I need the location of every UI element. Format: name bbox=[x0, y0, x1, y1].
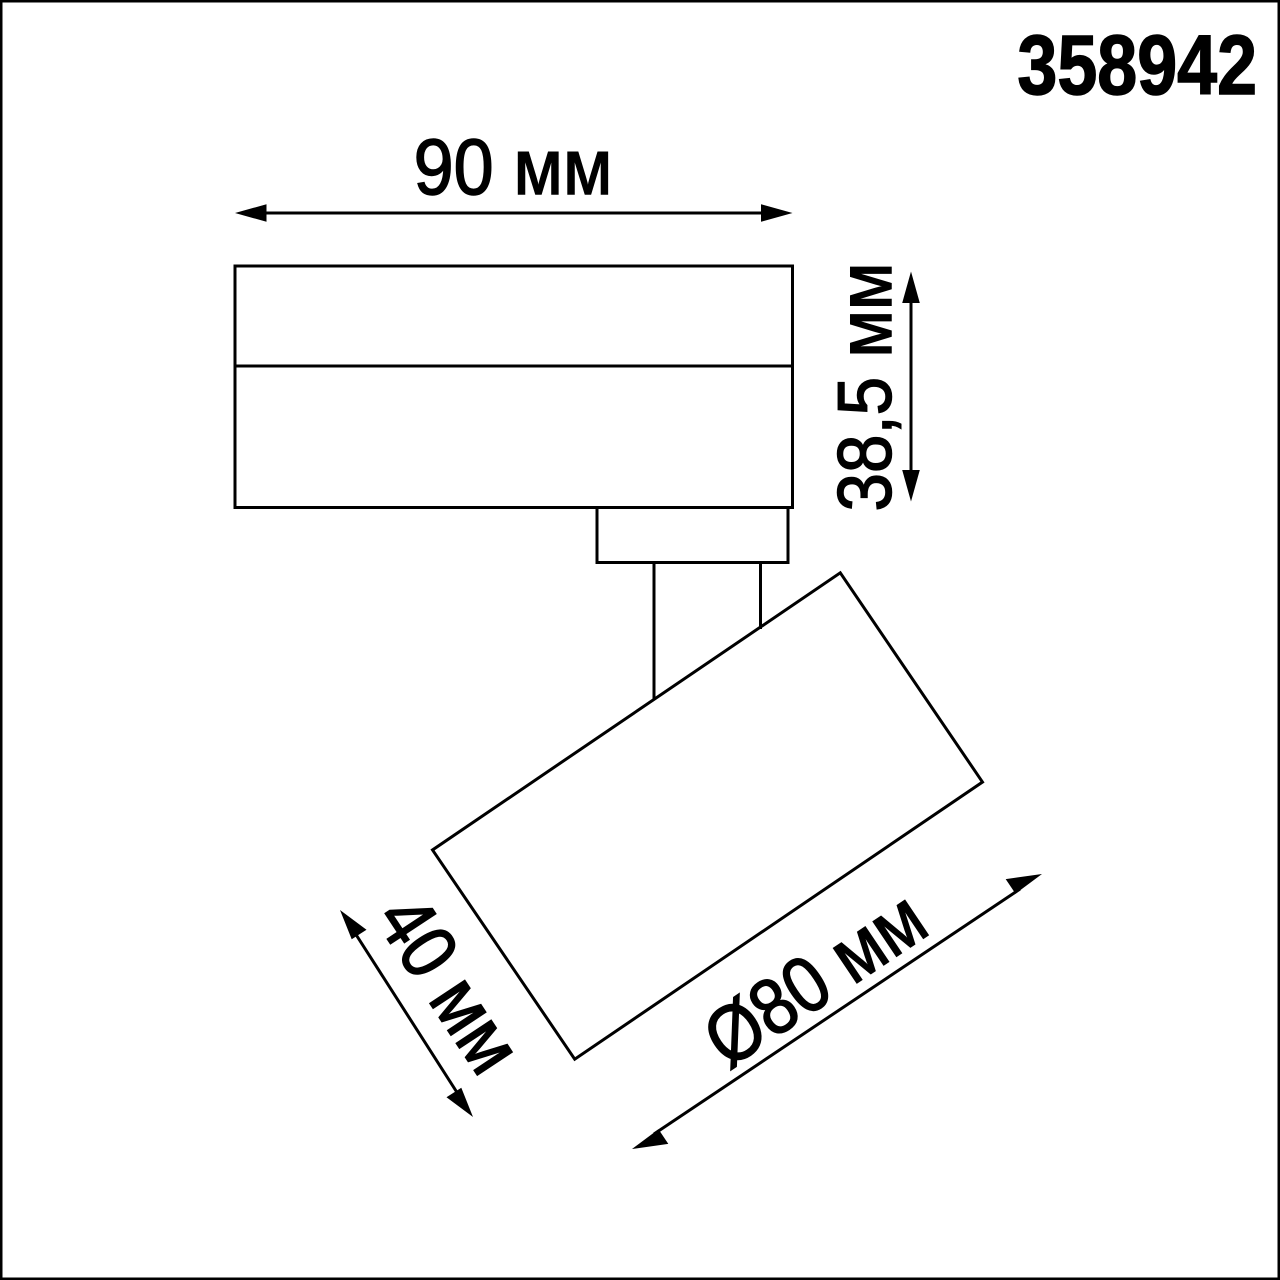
svg-text:90 мм: 90 мм bbox=[414, 124, 613, 212]
svg-text:Ø80 мм: Ø80 мм bbox=[688, 873, 942, 1084]
svg-text:358942: 358942 bbox=[1017, 18, 1257, 113]
svg-text:38,5 мм: 38,5 мм bbox=[823, 263, 908, 512]
